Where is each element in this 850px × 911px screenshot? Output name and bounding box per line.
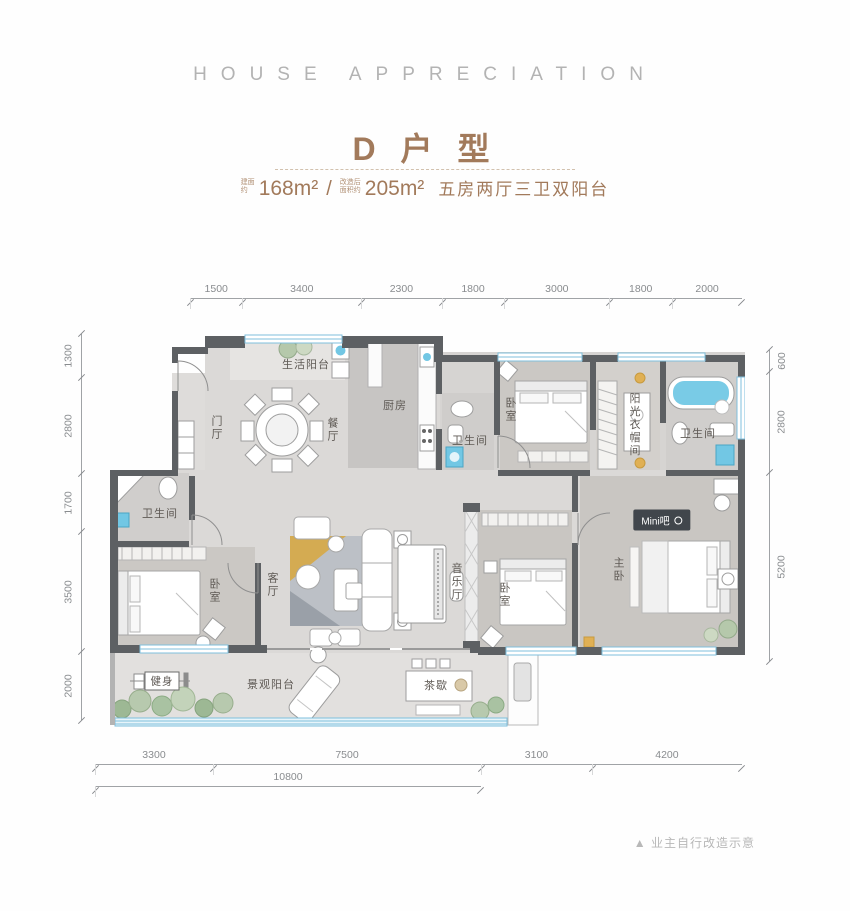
dimension-value: 1700 <box>63 491 75 514</box>
dimension-value: 2000 <box>63 674 75 697</box>
dim-row-bottom: 3300750031004200 <box>95 740 742 765</box>
dimension-value: 3400 <box>290 283 313 295</box>
dim-col-right: 60028005200 <box>769 350 794 661</box>
dimension-value: 2000 <box>695 283 718 295</box>
dimension-value: 3300 <box>142 749 165 761</box>
room-label-music-hall: 音乐厅 <box>448 563 464 602</box>
dimension-value: 2800 <box>63 415 75 438</box>
shoe-cabinet <box>178 421 194 469</box>
floor-plan: 生活阳台 门厅 餐厅 厨房 卫生间 卧室 阳光衣帽间 卫生间 卫生间 卧室 客厅… <box>110 333 745 730</box>
dimension-value: 1800 <box>461 283 484 295</box>
dimension-value: 600 <box>776 352 788 370</box>
glass-partition <box>463 503 480 650</box>
balcony-utility <box>508 655 538 725</box>
room-label-cloakroom: 阳光衣帽间 <box>626 393 642 458</box>
area1-prefix: 建面约 <box>241 179 255 197</box>
dimension-value: 4200 <box>655 749 678 761</box>
room-label-mini-bar: Mini吧 <box>633 510 690 531</box>
room-label-dining-room: 餐厅 <box>324 417 340 443</box>
room-label-living-room: 客厅 <box>264 572 280 598</box>
room-label-fitness: 健身 <box>145 672 180 691</box>
room-label-master-bedroom: 主卧 <box>610 557 626 583</box>
room-label-tea-break: 茶歇 <box>424 677 448 693</box>
sofa <box>362 529 392 631</box>
dining-table <box>241 388 323 472</box>
room-label-bathroom-left: 卫生间 <box>142 505 178 521</box>
dimension-value: 1300 <box>63 345 75 368</box>
coffee-table <box>334 569 362 611</box>
room-label-bedroom-mid: 卧室 <box>496 582 512 608</box>
dimension-value: 1800 <box>629 283 652 295</box>
area2-value: 205m² <box>365 178 425 199</box>
dim-row-top: 1500340023001800300018002000 <box>190 272 742 299</box>
dimension-value: 7500 <box>335 749 358 761</box>
room-label-kitchen: 厨房 <box>383 397 407 413</box>
dimension-value: 3100 <box>525 749 548 761</box>
dimension-value: 10800 <box>273 771 302 783</box>
floor-plan-drawing <box>110 333 745 730</box>
room-label-laundry-balcony: 生活阳台 <box>282 356 330 372</box>
bed-master-bedroom <box>630 541 730 613</box>
area-info: 建面约 168m² / 改造后面积约 205m² 五房两厅三卫双阳台 <box>0 178 850 199</box>
dimension-value: 3000 <box>545 283 568 295</box>
dimension-value: 2800 <box>776 411 788 434</box>
area1-value: 168m² <box>259 178 319 199</box>
dimension-value: 2300 <box>390 283 413 295</box>
room-label-bathroom-mid: 卫生间 <box>452 432 488 448</box>
room-label-bathroom-right: 卫生间 <box>680 425 716 441</box>
balcony-glass <box>115 718 507 726</box>
dim-row-bottom-total: 10800 <box>95 764 481 787</box>
bathtub <box>668 377 734 414</box>
area2-prefix: 改造后面积约 <box>340 179 361 197</box>
dimension-value: 3500 <box>63 580 75 603</box>
dimension-value: 1500 <box>205 283 228 295</box>
room-label-view-balcony: 景观阳台 <box>247 676 295 692</box>
eyebrow-title: HOUSE APPRECIATION <box>0 64 850 86</box>
renovation-note: ▲ 业主自行改造示意 <box>634 834 755 851</box>
layout-description: 五房两厅三卫双阳台 <box>438 181 609 199</box>
room-label-bedroom-top: 卧室 <box>502 397 518 423</box>
dim-col-left: 13002800170035002000 <box>57 334 82 720</box>
page: HOUSE APPRECIATION D 户 型 建面约 168m² / 改造后… <box>0 0 850 911</box>
dimension-value: 5200 <box>776 555 788 578</box>
page-title: D 户 型 <box>0 124 850 170</box>
area-slash: / <box>326 179 332 199</box>
room-label-bedroom-left: 卧室 <box>206 578 222 604</box>
room-label-foyer: 门厅 <box>208 415 224 441</box>
divider-dashed <box>275 169 575 170</box>
